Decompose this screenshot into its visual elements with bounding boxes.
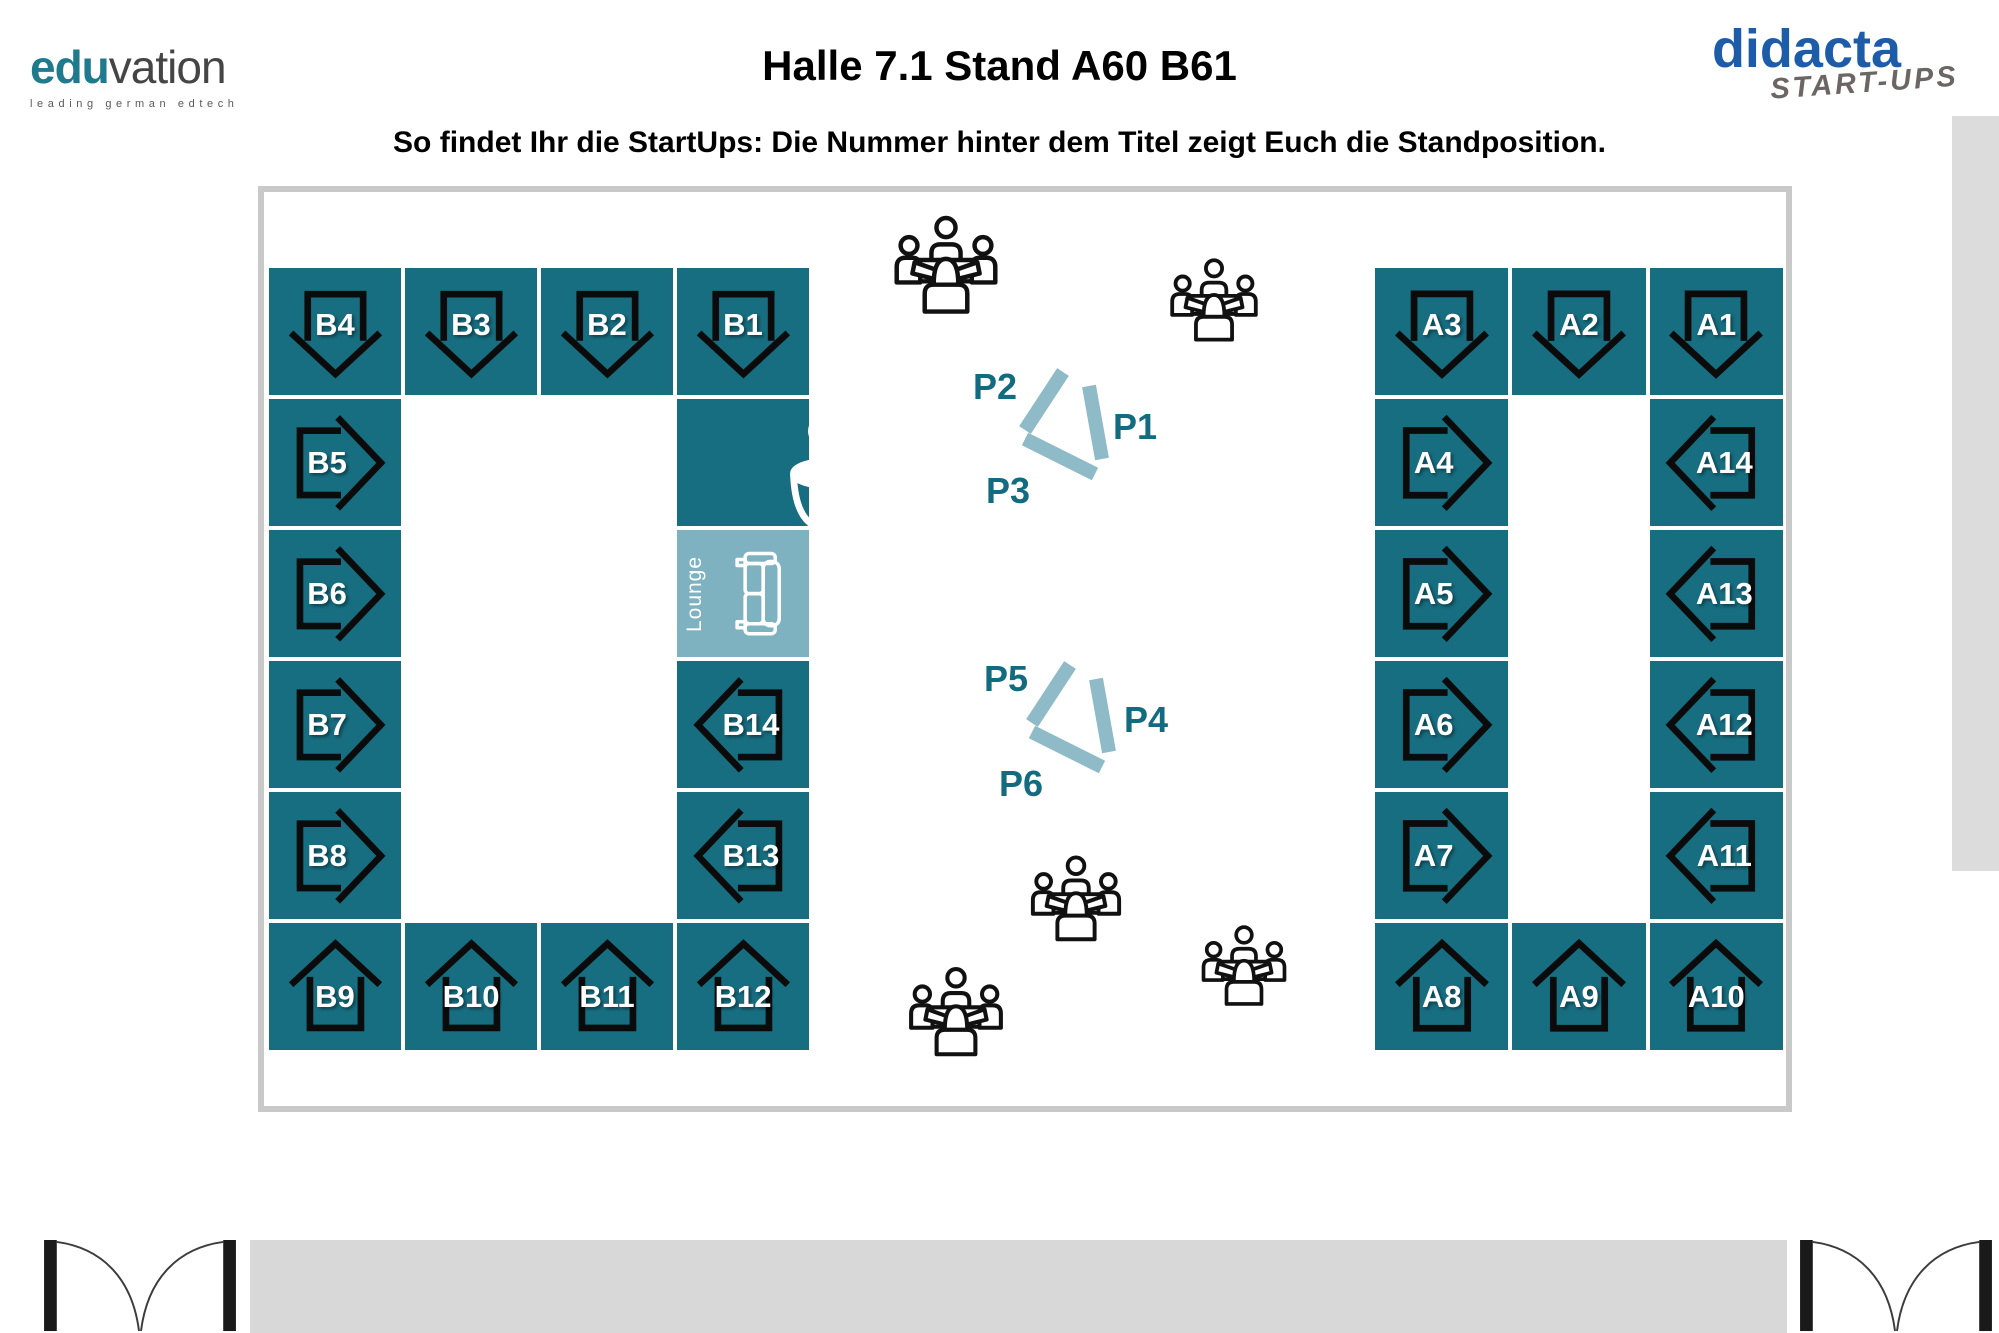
eduvation-tagline: leading german edtech: [30, 98, 239, 110]
booth-b3: B3: [405, 268, 537, 395]
booth-b5: B5: [269, 399, 401, 526]
booth-a7: A7: [1375, 792, 1508, 919]
booth-b14: B14: [677, 661, 809, 788]
meeting-people-icon: [1163, 256, 1265, 351]
booth-label: A10: [1650, 979, 1783, 1015]
booth-a14: A14: [1650, 399, 1783, 526]
booth-label: A1: [1650, 307, 1783, 343]
booth-b4: B4: [269, 268, 401, 395]
booth-a1: A1: [1650, 268, 1783, 395]
podium-label-p3: P3: [986, 470, 1030, 512]
booth-a9: A9: [1512, 923, 1645, 1050]
podium-label-p5: P5: [984, 658, 1028, 700]
booth-a8: A8: [1375, 923, 1508, 1050]
booth-label: B13: [685, 838, 817, 874]
a-block: A3 A2 A1 A4 A5 A6 A7 A14: [1375, 268, 1783, 1050]
booth-label: A8: [1375, 979, 1508, 1015]
vertical-scrollbar-thumb[interactable]: [1952, 116, 1999, 871]
meeting-people-icon: [885, 213, 1007, 325]
booth-b1: B1: [677, 268, 809, 395]
meeting-people-icon: [1025, 853, 1127, 951]
booth-label: A12: [1658, 707, 1791, 743]
booth-label: B8: [261, 838, 393, 874]
open-book-icon: [1796, 1240, 1996, 1333]
booth-label: A11: [1658, 838, 1791, 874]
booth-b8: B8: [269, 792, 401, 919]
booth-a13: A13: [1650, 530, 1783, 657]
booth-label: A14: [1658, 445, 1791, 481]
booth-a11: A11: [1650, 792, 1783, 919]
booth-label: B10: [405, 979, 537, 1015]
booth-label: B12: [677, 979, 809, 1015]
podium-label-p1: P1: [1113, 406, 1157, 448]
booth-label: A2: [1512, 307, 1645, 343]
booth-b9: B9: [269, 923, 401, 1050]
booth-label: B1: [677, 307, 809, 343]
open-book-icon: [40, 1240, 240, 1333]
lounge-label: Lounge: [683, 555, 707, 631]
booth-label: A3: [1375, 307, 1508, 343]
booth-label: A7: [1367, 838, 1500, 874]
booth-label: B9: [269, 979, 401, 1015]
booth-label: B11: [541, 979, 673, 1015]
booth-b13: B13: [677, 792, 809, 919]
couch-icon: [705, 539, 805, 648]
booth-label: A13: [1658, 576, 1791, 612]
booth-label: B2: [541, 307, 673, 343]
booth-a4: A4: [1375, 399, 1508, 526]
meeting-people-icon: [905, 963, 1007, 1068]
booth-label: B4: [269, 307, 401, 343]
booth-b7: B7: [269, 661, 401, 788]
meeting-people-icon: [1196, 923, 1292, 1015]
booth-label: B3: [405, 307, 537, 343]
didacta-logo: didacta START-UPS: [1629, 22, 1959, 105]
booth-label: B7: [261, 707, 393, 743]
podium-label-p2: P2: [973, 366, 1017, 408]
bottom-gray-bar: [250, 1240, 1787, 1333]
booth-a3: A3: [1375, 268, 1508, 395]
booth-label: A4: [1367, 445, 1500, 481]
booth-b10: B10: [405, 923, 537, 1050]
booth-b6: B6: [269, 530, 401, 657]
booth-b12: B12: [677, 923, 809, 1050]
booth-label: B14: [685, 707, 817, 743]
podium-label-p6: P6: [999, 763, 1043, 805]
booth-b11: B11: [541, 923, 673, 1050]
podium-label-p4: P4: [1124, 699, 1168, 741]
booth-a6: A6: [1375, 661, 1508, 788]
b-block: B4 B3 B2 B1 B5 B6 B7 B8: [269, 268, 809, 1050]
page-subtitle: So findet Ihr die StartUps: Die Nummer h…: [0, 126, 1999, 160]
booth-label: B6: [261, 576, 393, 612]
booth-a10: A10: [1650, 923, 1783, 1050]
booth-a12: A12: [1650, 661, 1783, 788]
booth-label: A5: [1367, 576, 1500, 612]
coffee-area: [677, 399, 809, 526]
booth-b2: B2: [541, 268, 673, 395]
booth-a2: A2: [1512, 268, 1645, 395]
booth-a5: A5: [1375, 530, 1508, 657]
booth-label: B5: [261, 445, 393, 481]
lounge-area: Lounge: [677, 530, 809, 657]
booth-label: A6: [1367, 707, 1500, 743]
booth-label: A9: [1512, 979, 1645, 1015]
page: eduvation leading german edtech Halle 7.…: [0, 0, 1999, 1333]
